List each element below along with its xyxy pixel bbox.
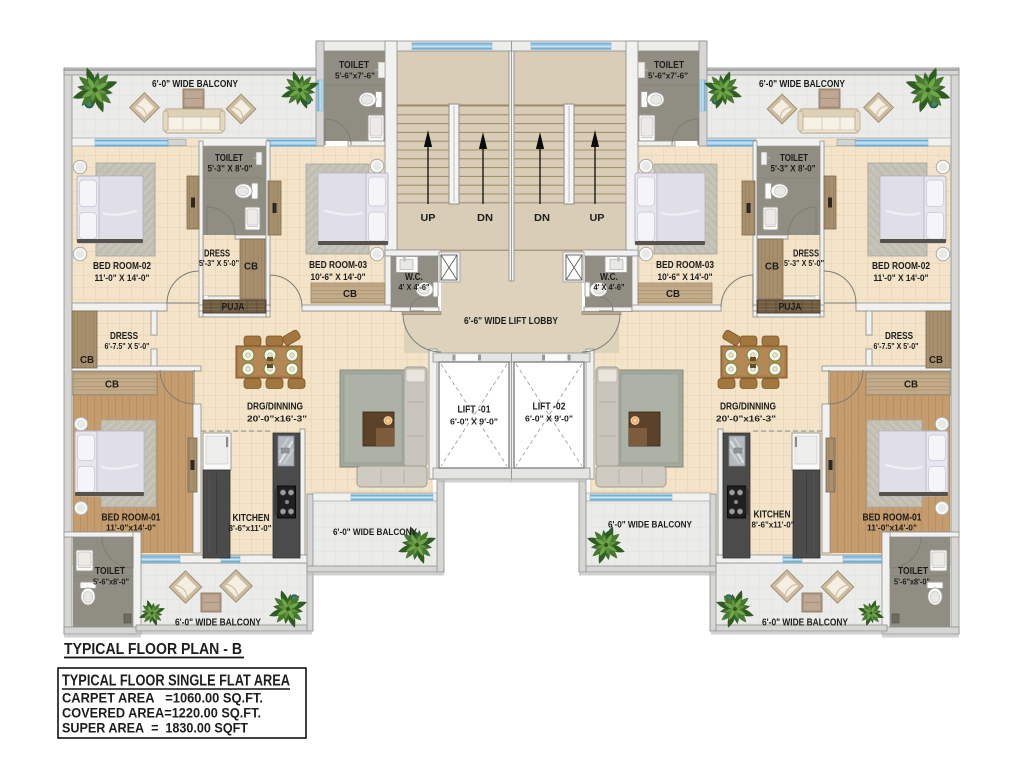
svg-text:CB: CB [244,262,258,273]
svg-text:6'-0" X 9'-0": 6'-0" X 9'-0" [450,417,498,427]
svg-text:UP: UP [590,213,606,224]
svg-text:6'-0" WIDE BALCONY: 6'-0" WIDE BALCONY [333,527,417,537]
svg-text:6'-7.5" X 5'-0": 6'-7.5" X 5'-0" [874,341,919,351]
svg-text:4' X 4'-6": 4' X 4'-6" [594,282,625,292]
svg-text:BED ROOM-02: BED ROOM-02 [93,261,151,272]
svg-text:TOILET: TOILET [780,152,808,164]
svg-text:CARPET AREA =1060.00 SQ.FT.: CARPET AREA =1060.00 SQ.FT. [62,690,263,706]
svg-text:6'-0" WIDE BALCONY: 6'-0" WIDE BALCONY [175,618,261,629]
svg-text:6'-0" X 9'-0": 6'-0" X 9'-0" [525,414,573,424]
svg-text:6'-0" WIDE BALCONY: 6'-0" WIDE BALCONY [608,520,692,530]
svg-text:5'-6"x8'-0": 5'-6"x8'-0" [894,578,930,587]
svg-text:TOILET: TOILET [95,566,125,577]
svg-text:5'-6"x8'-0": 5'-6"x8'-0" [93,578,129,587]
svg-text:4' X 4'-6": 4' X 4'-6" [399,282,430,292]
svg-text:LIFT -02: LIFT -02 [533,402,566,413]
svg-text:6'-0" WIDE BALCONY: 6'-0" WIDE BALCONY [762,618,848,629]
svg-text:6'-7.5" X 5'-0": 6'-7.5" X 5'-0" [105,341,150,351]
svg-text:20'-0"x16'-3": 20'-0"x16'-3" [716,414,776,424]
svg-text:5'-3" X 8'-0": 5'-3" X 8'-0" [771,164,816,174]
svg-text:DRG/DINNING: DRG/DINNING [720,402,776,413]
svg-text:TOILET: TOILET [215,152,243,164]
svg-text:CB: CB [343,289,357,300]
svg-text:10'-6" X 14'-0": 10'-6" X 14'-0" [658,272,713,282]
svg-text:11'-0" X 14'-0": 11'-0" X 14'-0" [95,273,150,283]
svg-text:5'-6"x7'-6": 5'-6"x7'-6" [648,71,688,81]
svg-text:5'-6"x7'-6": 5'-6"x7'-6" [335,71,375,81]
svg-text:11'-0"x14'-0": 11'-0"x14'-0" [867,523,917,533]
svg-text:PUJA: PUJA [222,302,245,313]
svg-text:TYPICAL FLOOR SINGLE FLAT AREA: TYPICAL FLOOR SINGLE FLAT AREA [62,673,290,690]
svg-text:10'-6" X 14'-0": 10'-6" X 14'-0" [311,272,366,282]
svg-text:COVERED AREA=1220.00 SQ.FT.: COVERED AREA=1220.00 SQ.FT. [62,705,261,721]
svg-text:20'-0"x16'-3": 20'-0"x16'-3" [247,414,307,424]
svg-text:6'-6" WIDE LIFT LOBBY: 6'-6" WIDE LIFT LOBBY [464,316,558,327]
svg-text:UP: UP [421,213,437,224]
svg-text:DRG/DINNING: DRG/DINNING [247,402,303,413]
svg-text:CB: CB [666,289,680,300]
svg-text:PUJA: PUJA [779,302,802,313]
svg-text:8'-6"x11'-0": 8'-6"x11'-0" [229,523,272,533]
svg-text:5'-3" X 8'-0": 5'-3" X 8'-0" [208,164,253,174]
svg-text:8'-6"x11'-0": 8'-6"x11'-0" [752,520,795,530]
svg-text:11'-0"x14'-0": 11'-0"x14'-0" [106,523,156,533]
svg-text:DN: DN [534,213,550,224]
svg-text:CB: CB [929,355,943,366]
svg-text:TYPICAL FLOOR PLAN - B: TYPICAL FLOOR PLAN - B [64,641,242,658]
svg-text:CB: CB [80,355,94,366]
svg-text:5'-3" X 5'-0": 5'-3" X 5'-0" [784,258,824,268]
svg-text:DN: DN [477,213,493,224]
svg-text:6'-0" WIDE BALCONY: 6'-0" WIDE BALCONY [152,79,238,90]
svg-text:TOILET: TOILET [339,60,369,71]
svg-text:TOILET: TOILET [654,60,684,71]
svg-text:CB: CB [765,262,779,273]
svg-text:6'-0" WIDE BALCONY: 6'-0" WIDE BALCONY [759,79,845,90]
svg-text:TOILET: TOILET [898,566,928,577]
svg-text:CB: CB [105,380,119,391]
svg-text:5'-3" X 5'-0": 5'-3" X 5'-0" [199,258,239,268]
svg-text:SUPER AREA = 1830.00 SQFT: SUPER AREA = 1830.00 SQFT [62,720,248,736]
svg-text:BED ROOM-02: BED ROOM-02 [872,261,930,272]
svg-text:CB: CB [904,380,918,391]
svg-text:BED ROOM-03: BED ROOM-03 [309,260,367,271]
svg-text:11'-0" X 14'-0": 11'-0" X 14'-0" [874,273,929,283]
svg-text:BED ROOM-03: BED ROOM-03 [656,260,714,271]
svg-text:LIFT -01: LIFT -01 [458,405,492,416]
